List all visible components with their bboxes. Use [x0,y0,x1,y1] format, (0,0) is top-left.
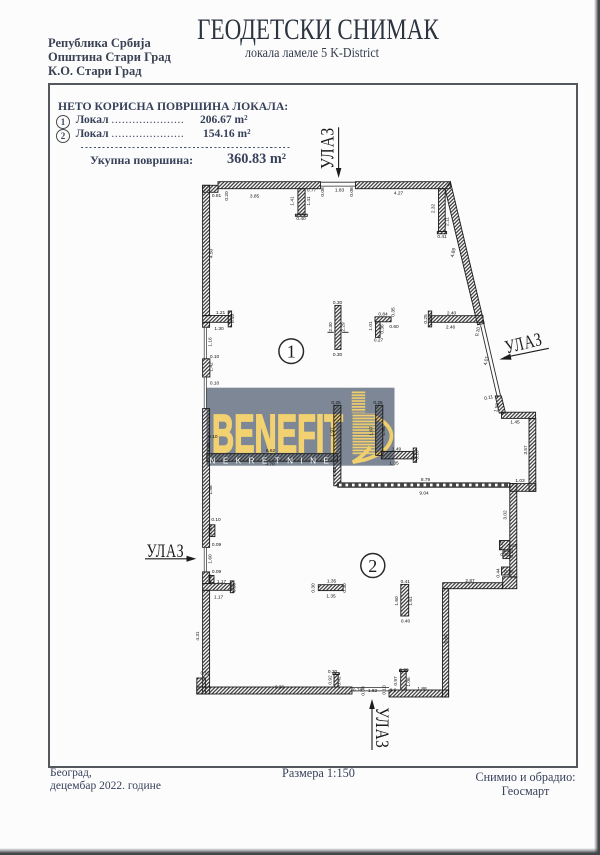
svg-text:1.35: 1.35 [206,442,212,452]
svg-text:0.63: 0.63 [507,543,517,549]
svg-text:2.46: 2.46 [446,325,456,331]
svg-text:0.08: 0.08 [320,187,326,197]
svg-text:1.41: 1.41 [306,196,312,206]
svg-text:0.42: 0.42 [337,676,343,686]
svg-text:0.30: 0.30 [231,583,237,593]
svg-text:1.35: 1.35 [389,461,399,467]
svg-text:0.10: 0.10 [474,326,482,337]
svg-text:УЛАЗ: УЛАЗ [372,707,393,749]
svg-text:1.83: 1.83 [335,188,345,194]
svg-text:0.36: 0.36 [380,324,386,334]
svg-text:0.98: 0.98 [208,526,214,536]
svg-text:4.31: 4.31 [195,631,201,641]
svg-text:0.10: 0.10 [211,517,221,523]
svg-text:1.17: 1.17 [217,579,227,585]
svg-text:0.6: 0.6 [390,688,397,694]
svg-text:9.04: 9.04 [419,491,429,497]
svg-text:0.25: 0.25 [331,400,341,406]
svg-text:0.41: 0.41 [401,579,411,585]
svg-text:0.25: 0.25 [504,569,514,575]
svg-text:УЛАЗ: УЛАЗ [317,127,338,169]
svg-text:0.11: 0.11 [201,671,210,677]
svg-text:3.57: 3.57 [523,445,529,455]
svg-text:1.17: 1.17 [214,595,224,601]
svg-text:1.21: 1.21 [216,310,226,316]
svg-text:0.60: 0.60 [389,324,399,330]
svg-text:0.09: 0.09 [212,569,222,575]
svg-text:1.35: 1.35 [327,579,337,585]
svg-text:6.30: 6.30 [275,685,285,691]
svg-text:1.60: 1.60 [394,596,400,606]
svg-text:0.10: 0.10 [382,685,388,695]
svg-text:1.88: 1.88 [417,686,427,692]
svg-text:0.30: 0.30 [311,583,317,593]
svg-text:8.79: 8.79 [421,477,431,483]
svg-text:0.09: 0.09 [212,542,222,548]
svg-text:2.40: 2.40 [447,311,457,317]
svg-text:1.82: 1.82 [368,688,378,694]
svg-text:1: 1 [287,342,296,362]
svg-text:0.40: 0.40 [230,314,236,324]
svg-text:0.11: 0.11 [484,394,494,402]
svg-text:1.49: 1.49 [392,447,402,453]
svg-text:2.29: 2.29 [340,322,346,332]
svg-text:2.11: 2.11 [445,217,451,226]
svg-text:0.10: 0.10 [210,381,220,387]
svg-text:0.30: 0.30 [399,668,409,674]
svg-text:0.81: 0.81 [212,193,222,199]
svg-text:1.52: 1.52 [332,467,338,477]
svg-text:3.02: 3.02 [502,510,508,520]
svg-text:0.40: 0.40 [401,619,411,625]
svg-text:1.30: 1.30 [214,326,224,332]
svg-text:2.32: 2.32 [431,204,437,214]
svg-text:0.20: 0.20 [224,191,230,201]
svg-text:0.44: 0.44 [496,568,502,578]
svg-text:0.08: 0.08 [349,187,355,197]
svg-text:0.30: 0.30 [342,583,348,593]
svg-text:1.03: 1.03 [515,478,525,484]
svg-text:1.60: 1.60 [208,554,214,564]
svg-text:0.30: 0.30 [328,669,338,675]
svg-text:1.97: 1.97 [330,427,336,437]
svg-text:4.89: 4.89 [450,247,458,258]
svg-text:0.77: 0.77 [307,188,317,194]
svg-text:0.40: 0.40 [296,216,306,222]
svg-text:0.10: 0.10 [414,450,420,460]
svg-text:0.30: 0.30 [333,300,343,306]
svg-text:0.97: 0.97 [393,676,399,686]
svg-text:3.85: 3.85 [250,194,260,200]
svg-text:1.94: 1.94 [381,426,387,436]
svg-text:0.41: 0.41 [437,234,447,240]
svg-text:0.30: 0.30 [333,352,343,358]
svg-text:1.41: 1.41 [290,196,296,206]
svg-text:1.42: 1.42 [209,362,215,372]
svg-text:2: 2 [368,556,377,576]
svg-text:1.16: 1.16 [208,337,214,347]
svg-text:0.27: 0.27 [374,338,384,344]
svg-text:NEKRETNINE: NEKRETNINE [210,457,337,466]
svg-text:1.67: 1.67 [369,426,375,436]
svg-text:2.87: 2.87 [465,578,475,584]
svg-text:1.01: 1.01 [368,321,374,331]
svg-text:0.84: 0.84 [378,312,388,318]
svg-text:1.06: 1.06 [406,677,412,687]
svg-text:0.92: 0.92 [328,675,334,685]
svg-text:2.30: 2.30 [328,322,334,332]
svg-text:0.25: 0.25 [373,400,383,406]
svg-text:0.43: 0.43 [207,574,213,584]
svg-text:0.60: 0.60 [500,552,510,558]
svg-text:0.25: 0.25 [499,540,505,550]
svg-text:0.25: 0.25 [509,548,515,558]
svg-text:1.58: 1.58 [208,485,214,495]
svg-text:1.61: 1.61 [408,596,414,606]
svg-text:1.35: 1.35 [326,594,336,600]
svg-text:0.10: 0.10 [208,434,218,440]
svg-text:0.10: 0.10 [210,354,220,360]
svg-text:1.45: 1.45 [510,420,520,426]
svg-text:6.62: 6.62 [266,448,276,454]
svg-text:4.50: 4.50 [208,249,214,259]
svg-text:0.25: 0.25 [423,314,429,324]
svg-text:0.08: 0.08 [361,686,367,696]
svg-text:4.27: 4.27 [394,191,404,197]
svg-text:0.35: 0.35 [391,307,397,317]
svg-text:5.66: 5.66 [444,634,450,644]
